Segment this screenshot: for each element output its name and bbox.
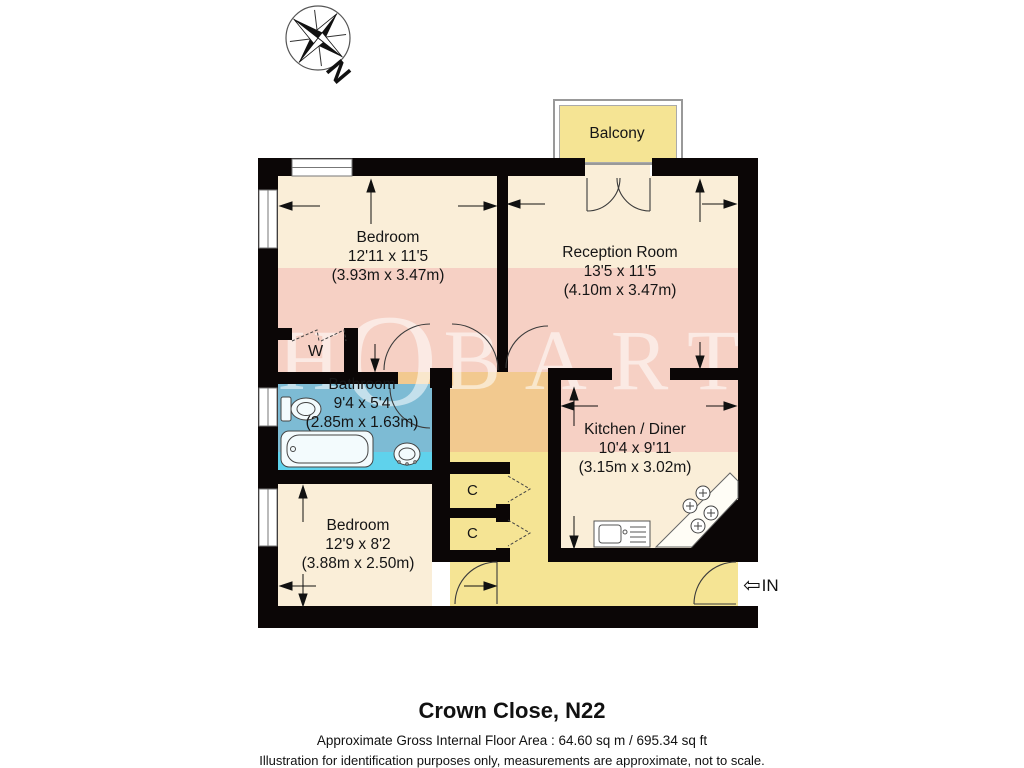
bathroom-label: Bathroom 9'4 x 5'4 (2.85m x 1.63m) xyxy=(262,375,462,432)
closet-bottom-label: C xyxy=(467,525,478,542)
compass-north-label: N xyxy=(319,54,357,90)
wall-bottom xyxy=(258,606,758,628)
wall-bathroom-bottom xyxy=(258,470,450,484)
closet-top-label: C xyxy=(467,482,478,499)
page-title: Crown Close, N22 xyxy=(0,698,1024,724)
wall-top-left xyxy=(258,158,585,176)
wall-wardrobe-right xyxy=(344,328,358,374)
entrance-text: IN xyxy=(762,576,779,596)
entrance-arrow-icon: ⇦ xyxy=(743,575,761,596)
entrance-in-label: ⇦ IN xyxy=(743,575,779,596)
floorplan-page: H O BARTS xyxy=(0,0,1024,768)
wardrobe-label: W xyxy=(308,343,323,361)
balcony-label: Balcony xyxy=(559,124,675,143)
wall-right xyxy=(738,158,758,562)
wall-closet-top xyxy=(432,462,504,474)
wall-closet-stub-3 xyxy=(496,548,510,562)
reception-label: Reception Room 13'5 x 11'5 (4.10m x 3.47… xyxy=(520,243,720,300)
floor-area-text: Approximate Gross Internal Floor Area : … xyxy=(0,733,1024,748)
bedroom2-label: Bedroom 12'9 x 8'2 (3.88m x 2.50m) xyxy=(258,516,458,573)
wall-closet-stub-1 xyxy=(496,462,510,474)
kitchen-label: Kitchen / Diner 10'4 x 9'11 (3.15m x 3.0… xyxy=(535,420,735,477)
wall-kitchen-bottom xyxy=(548,548,708,562)
title-block: Crown Close, N22 Approximate Gross Inter… xyxy=(0,698,1024,768)
bedroom1-label: Bedroom 12'11 x 11'5 (3.93m x 3.47m) xyxy=(288,228,488,285)
disclaimer-text: Illustration for identification purposes… xyxy=(0,753,1024,768)
wall-closet-stub-2 xyxy=(496,504,510,522)
entrance-corridor-floor xyxy=(548,562,738,608)
wall-reception-bottom-b xyxy=(670,368,738,380)
wall-bedroom1-reception xyxy=(497,176,508,372)
wall-wardrobe-stub xyxy=(278,328,292,340)
